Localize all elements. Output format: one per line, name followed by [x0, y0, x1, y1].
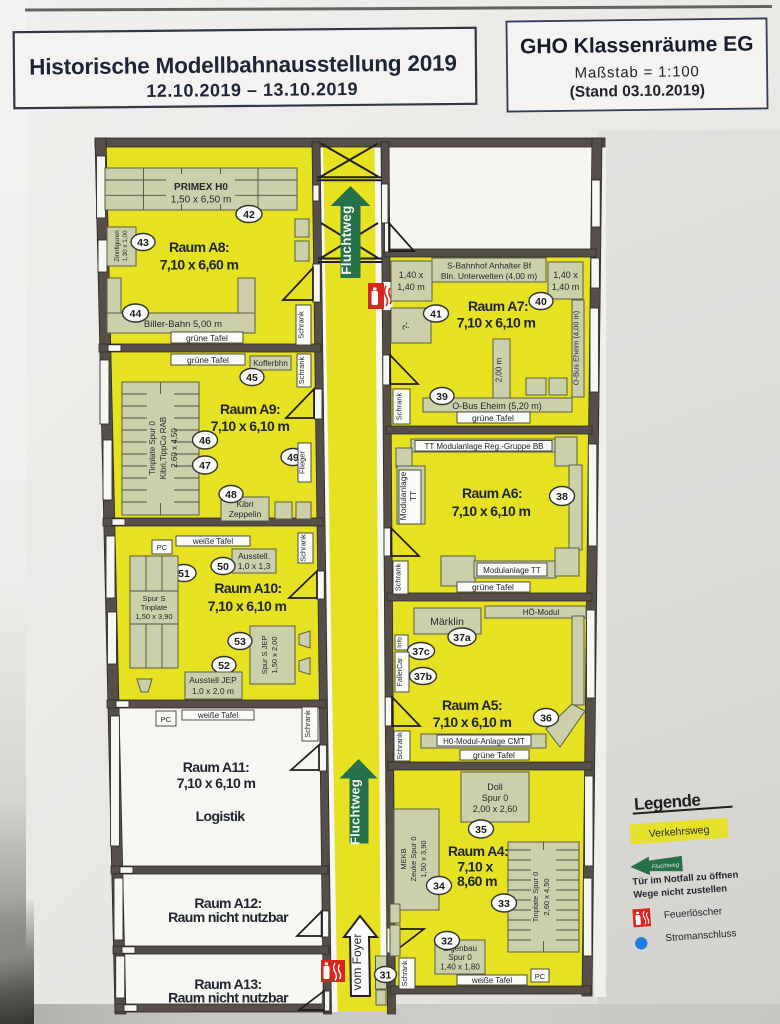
svg-text:grüne Tafel: grüne Tafel [472, 413, 514, 423]
svg-text:Spur S: Spur S [143, 594, 166, 603]
svg-text:46: 46 [199, 435, 211, 447]
svg-text:2,60 x 4,50: 2,60 x 4,50 [170, 428, 179, 468]
svg-text:1,40 x: 1,40 x [553, 270, 578, 280]
svg-text:TT Modulanlage Reg.-Gruppe BB: TT Modulanlage Reg.-Gruppe BB [424, 442, 543, 451]
svg-text:Fluchtweg: Fluchtweg [339, 205, 354, 274]
svg-text:47: 47 [199, 460, 211, 472]
svg-text:Raum A5:: Raum A5: [442, 697, 502, 713]
svg-text:O-Bus Eheim (5,20 m): O-Bus Eheim (5,20 m) [452, 401, 542, 411]
svg-text:?-: ?- [401, 322, 411, 330]
svg-text:Zinnfiguren: Zinnfiguren [114, 230, 121, 262]
svg-text:grüne Tafel: grüne Tafel [472, 582, 514, 592]
svg-text:39: 39 [436, 391, 448, 403]
svg-text:1,40 m: 1,40 m [552, 282, 580, 292]
svg-text:Zeuke Spur 0: Zeuke Spur 0 [409, 836, 418, 881]
svg-text:42: 42 [243, 209, 255, 221]
svg-text:Feuerlöscher: Feuerlöscher [664, 906, 724, 921]
svg-text:8,60 m: 8,60 m [457, 873, 497, 889]
svg-text:31: 31 [380, 970, 392, 982]
svg-text:37b: 37b [414, 671, 432, 683]
svg-text:PRIMEX H0: PRIMEX H0 [174, 182, 228, 193]
svg-text:Kofferbhn: Kofferbhn [253, 359, 288, 368]
svg-text:Schrank: Schrank [402, 960, 409, 986]
svg-text:Schrank: Schrank [395, 392, 404, 420]
svg-text:Bln. Unterwelten (4,00 m): Bln. Unterwelten (4,00 m) [441, 271, 538, 281]
svg-text:HÖ-Modul: HÖ-Modul [523, 608, 560, 617]
svg-text:48: 48 [225, 489, 237, 501]
svg-text:Spur 0: Spur 0 [448, 953, 472, 962]
svg-text:1,40 x 1,80: 1,40 x 1,80 [440, 963, 480, 972]
svg-text:PC: PC [161, 715, 172, 724]
svg-text:53: 53 [234, 636, 246, 648]
svg-text:12.10.2019 – 13.10.2019: 12.10.2019 – 13.10.2019 [146, 79, 358, 101]
svg-text:Modulanlage: Modulanlage [398, 471, 408, 520]
svg-text:grüne Tafel: grüne Tafel [473, 750, 515, 760]
svg-text:Schrank: Schrank [299, 534, 308, 562]
svg-text:GHO Klassenräume EG: GHO Klassenräume EG [520, 33, 754, 59]
svg-text:Tinplate Spur 0: Tinplate Spur 0 [531, 872, 540, 923]
svg-text:Raum A11:: Raum A11: [183, 759, 249, 775]
svg-text:43: 43 [137, 237, 149, 249]
svg-text:7,10 x 6,10 m: 7,10 x 6,10 m [211, 418, 290, 434]
svg-text:Zeppelin: Zeppelin [229, 509, 262, 519]
svg-text:45: 45 [246, 372, 258, 384]
svg-text:H0-Modul-Anlage CMT: H0-Modul-Anlage CMT [443, 737, 525, 746]
svg-text:Ausstell JEP: Ausstell JEP [189, 675, 237, 685]
svg-text:33: 33 [498, 898, 510, 910]
svg-text:Info: Info [397, 637, 404, 648]
svg-text:52: 52 [218, 660, 230, 672]
svg-text:Schrank: Schrank [297, 311, 306, 339]
svg-text:Doll: Doll [487, 782, 503, 792]
svg-text:1,50 x 3,90: 1,50 x 3,90 [135, 612, 172, 621]
svg-text:Schrank: Schrank [297, 356, 306, 384]
svg-text:Historische Modellbahnausstell: Historische Modellbahnausstellung 2019 [29, 50, 457, 79]
svg-text:2,00 m: 2,00 m [495, 357, 504, 382]
svg-text:O-Bus Eheim (4,00 m): O-Bus Eheim (4,00 m) [572, 310, 581, 385]
svg-text:weiße Tafel: weiße Tafel [471, 976, 513, 985]
svg-text:Spur S JEP: Spur S JEP [260, 636, 269, 675]
svg-text:2,60 x 4,50: 2,60 x 4,50 [542, 878, 551, 915]
svg-text:Kibri,TippCo RAB: Kibri,TippCo RAB [159, 417, 168, 479]
svg-text:weiße Tafel: weiße Tafel [192, 537, 234, 546]
svg-text:34: 34 [433, 881, 445, 893]
svg-text:Flieger: Flieger [298, 451, 307, 474]
svg-text:7,10 x 6,10 m: 7,10 x 6,10 m [457, 315, 536, 331]
svg-text:41: 41 [430, 309, 442, 321]
svg-text:PC: PC [157, 543, 168, 552]
svg-text:1,50 x 6,50 m: 1,50 x 6,50 m [171, 195, 232, 206]
svg-text:Raum nicht nutzbar: Raum nicht nutzbar [168, 990, 289, 1006]
svg-text:Märklin: Märklin [430, 616, 464, 628]
svg-text:35: 35 [475, 824, 487, 836]
svg-text:Schrank: Schrank [395, 732, 404, 760]
svg-text:7,10 x 6,10 m: 7,10 x 6,10 m [433, 714, 512, 730]
svg-text:2,00 x 2,60: 2,00 x 2,60 [473, 804, 518, 814]
svg-text:1,0 x 1,3: 1,0 x 1,3 [238, 561, 271, 571]
svg-text:Spur 0: Spur 0 [482, 793, 509, 803]
svg-text:Raum A10:: Raum A10: [214, 580, 281, 596]
svg-text:37a: 37a [453, 632, 471, 644]
svg-text:FallerCar: FallerCar [397, 657, 404, 686]
svg-text:Schrank: Schrank [303, 710, 312, 738]
svg-text:50: 50 [217, 561, 229, 573]
svg-text:Modulanlage TT: Modulanlage TT [483, 566, 541, 575]
svg-text:7,10 x 6,10 m: 7,10 x 6,10 m [208, 598, 287, 614]
svg-text:PC: PC [535, 972, 546, 981]
svg-text:38: 38 [556, 491, 568, 503]
svg-text:Raum A6:: Raum A6: [462, 485, 522, 501]
svg-text:7,10 x 6,10 m: 7,10 x 6,10 m [177, 775, 256, 791]
svg-text:S-Bahnhof Anhalter Bf: S-Bahnhof Anhalter Bf [447, 261, 532, 271]
svg-text:7,10 x 6,60 m: 7,10 x 6,60 m [160, 257, 239, 273]
svg-text:MEKB: MEKB [399, 848, 408, 869]
svg-text:Tinplate: Tinplate [141, 603, 167, 612]
svg-text:36: 36 [540, 713, 552, 725]
svg-text:Raum A4:: Raum A4: [448, 843, 508, 859]
svg-text:Raum A7:: Raum A7: [468, 298, 528, 314]
svg-text:Biller-Bahn 5,00 m: Biller-Bahn 5,00 m [144, 319, 222, 330]
svg-text:Maßstab = 1:100: Maßstab = 1:100 [575, 63, 700, 82]
svg-text:Ausstell.: Ausstell. [238, 551, 270, 561]
svg-text:Stromanschluss: Stromanschluss [665, 928, 737, 944]
svg-text:Schrank: Schrank [394, 563, 403, 591]
svg-text:Raum A8:: Raum A8: [169, 239, 229, 255]
svg-text:grüne Tafel: grüne Tafel [186, 333, 228, 343]
svg-text:1,0 x 2,0 m: 1,0 x 2,0 m [192, 686, 234, 696]
svg-text:weiße Tafel: weiße Tafel [197, 711, 239, 720]
svg-text:44: 44 [130, 308, 142, 320]
svg-text:32: 32 [441, 936, 453, 948]
svg-text:1,50 x 3,90: 1,50 x 3,90 [419, 840, 428, 877]
svg-text:1,30 x 1,00: 1,30 x 1,00 [122, 230, 129, 262]
svg-text:TT: TT [408, 491, 418, 501]
svg-text:Tinplate Spur 0: Tinplate Spur 0 [148, 420, 157, 475]
svg-text:51: 51 [178, 568, 190, 580]
svg-text:37c: 37c [412, 646, 430, 658]
svg-text:Raum nicht nutzbar: Raum nicht nutzbar [168, 909, 289, 925]
svg-text:vom Foyer: vom Foyer [350, 934, 364, 991]
svg-text:Raum A9:: Raum A9: [220, 401, 280, 417]
svg-text:1,50 x 2,00: 1,50 x 2,00 [270, 636, 279, 673]
svg-text:40: 40 [535, 296, 547, 308]
svg-text:grüne Tafel: grüne Tafel [187, 355, 229, 365]
svg-text:7,10 x 6,10 m: 7,10 x 6,10 m [452, 503, 531, 519]
svg-text:1,40 m: 1,40 m [397, 282, 425, 292]
svg-text:Logistik: Logistik [196, 808, 246, 824]
svg-text:1,40 x: 1,40 x [399, 270, 424, 280]
svg-text:Fluchtweg: Fluchtweg [348, 779, 363, 845]
svg-text:(Stand 03.10.2019): (Stand 03.10.2019) [570, 82, 705, 101]
